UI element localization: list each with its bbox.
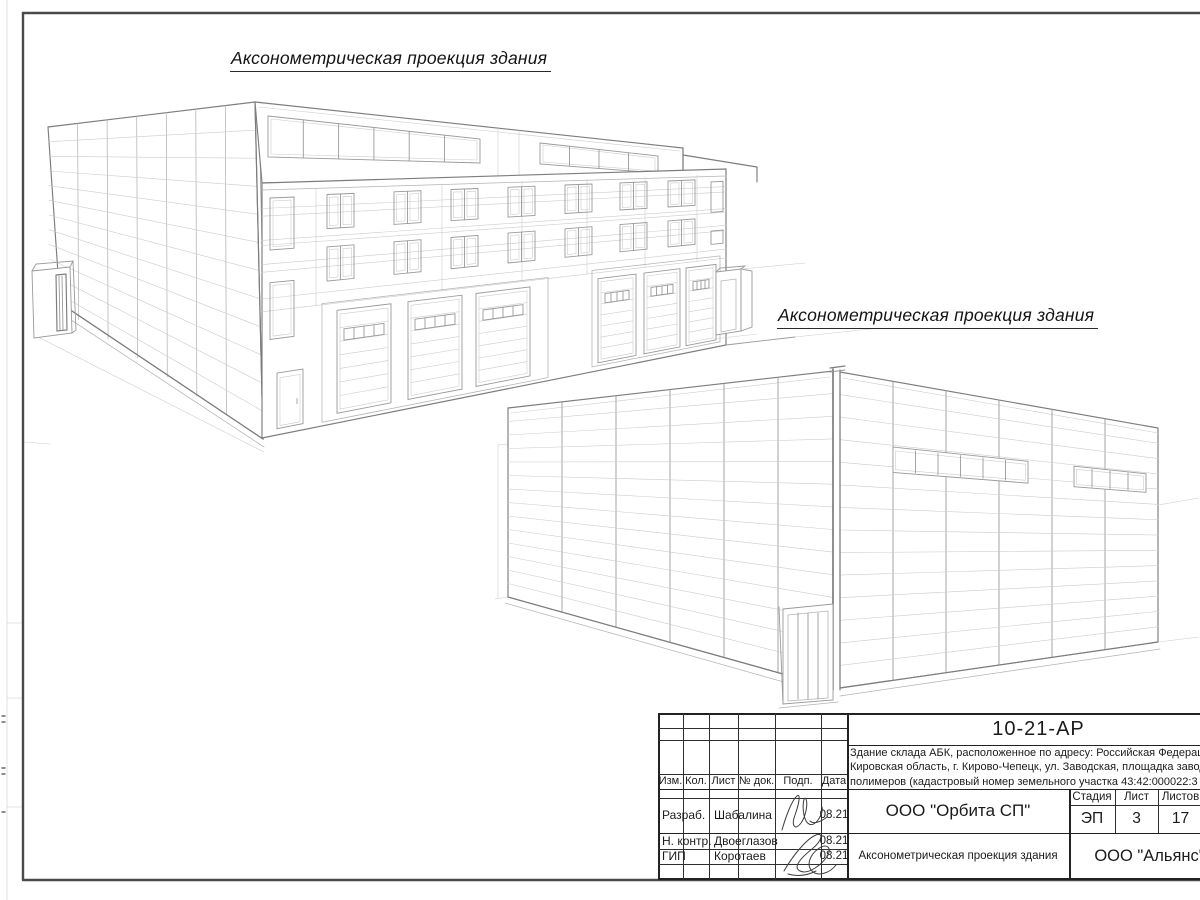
- listov-value: 17: [1158, 805, 1200, 833]
- sheet-title: Аксонометрическая проекция здания: [847, 833, 1069, 880]
- drawing-sheet: Аксонометрическая проекция здания Аксоно…: [0, 0, 1200, 900]
- project-description: Здание склада АБК, расположенное по адре…: [850, 745, 1200, 790]
- col-header-list: Лист: [709, 774, 738, 789]
- title-block-border-left: [658, 713, 660, 880]
- stage-value: ЭП: [1069, 805, 1115, 833]
- row-role-gip: ГИП: [662, 849, 714, 864]
- col-header-kol: Кол.: [683, 774, 709, 789]
- list-value: 3: [1115, 805, 1158, 833]
- stage-header: Стадия: [1069, 789, 1115, 805]
- building-2-warehouse-axonometric: [495, 366, 1199, 708]
- col-header-podp: Подп.: [775, 774, 821, 789]
- doc-number: 10-21-АР: [847, 713, 1200, 745]
- company-name: ООО "Альянс": [1069, 833, 1200, 880]
- listov-header: Листов: [1158, 789, 1200, 805]
- signature-korotaev: [778, 827, 840, 879]
- row-role-razrab: Разраб.: [662, 798, 710, 833]
- col-header-doc: № док.: [738, 774, 775, 789]
- caption-building-2: Аксонометрическая проекция здания: [777, 305, 1098, 329]
- col-header-izm: Изм.: [658, 774, 683, 789]
- org-name: ООО "Орбита СП": [847, 789, 1069, 833]
- col-header-data: Дата: [821, 774, 847, 789]
- list-header: Лист: [1115, 789, 1158, 805]
- row-role-nkontr: Н. контр.: [662, 833, 714, 849]
- binding-margin-strip: [2, 0, 23, 900]
- caption-building-1: Аксонометрическая проекция здания: [230, 48, 551, 72]
- title-block: Изм. Кол. Лист № док. Подп. Дата Разраб.…: [658, 713, 1200, 880]
